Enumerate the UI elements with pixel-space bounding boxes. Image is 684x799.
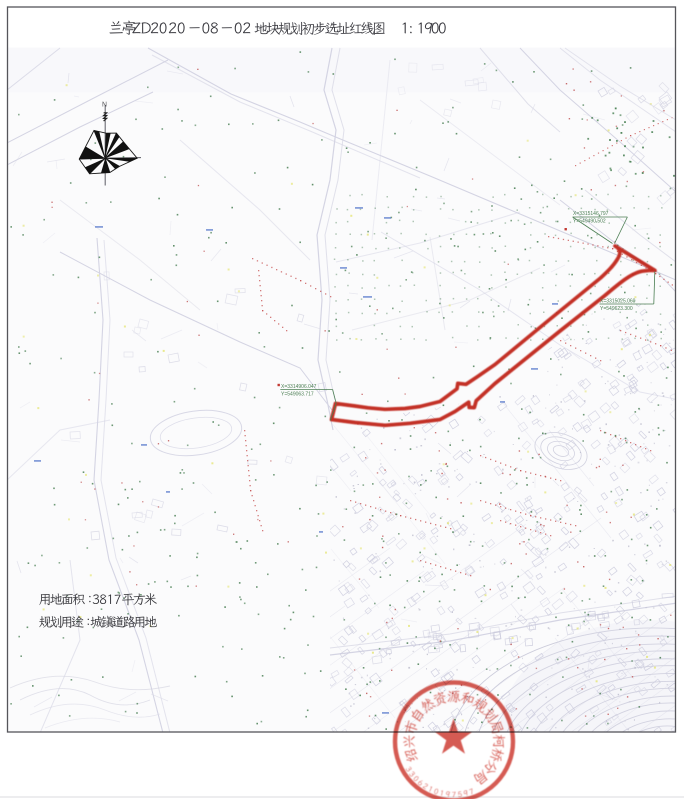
svg-text:Y=549063.717: Y=549063.717 [281,392,314,398]
svg-text:Y=549490.502: Y=549490.502 [573,219,606,225]
svg-text:Y=549623.300: Y=549623.300 [600,306,633,312]
svg-text:X=3315146.797: X=3315146.797 [573,211,609,217]
